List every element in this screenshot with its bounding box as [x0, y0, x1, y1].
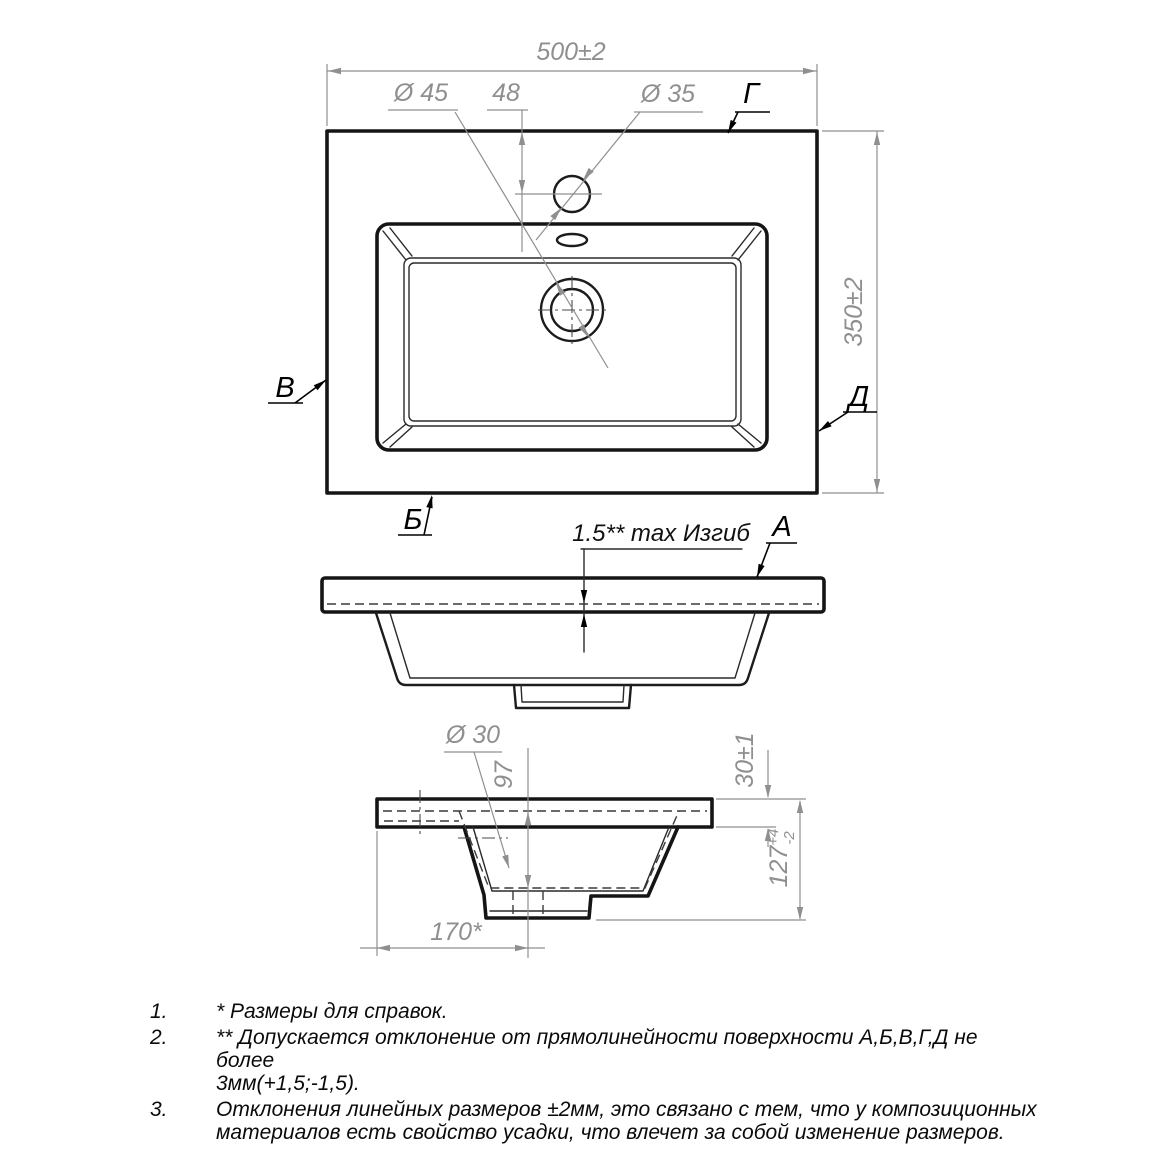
dim-drain-offset: 170* [360, 831, 545, 956]
overflow-slot [557, 234, 587, 246]
plan-view: 500±2 350±2 48 Ø 45 [268, 38, 884, 536]
surface-label-left: В [268, 372, 326, 404]
dim-97-text: 97 [490, 760, 518, 789]
svg-text:В: В [275, 372, 294, 404]
front-drain-boss [514, 685, 631, 708]
section-bowl-hidden [459, 811, 679, 888]
dim-bend: 1.5** max Изгиб [572, 520, 751, 652]
svg-text:Г: Г [743, 78, 761, 110]
note-2-number: 2. [150, 1026, 216, 1095]
note-1: 1. * Размеры для справок. [150, 1000, 1040, 1023]
note-2-text: ** Допускается отклонение от прямолинейн… [216, 1026, 1040, 1095]
svg-text:А: А [770, 511, 791, 543]
sink-drawing-svg: 500±2 350±2 48 Ø 45 [0, 0, 1161, 1161]
dim-48-text: 48 [492, 79, 520, 107]
note-3: 3. Отклонения линейных размеров ±2мм, эт… [150, 1098, 1040, 1144]
dim-dia30-text: Ø 30 [445, 721, 500, 749]
dim-drain-dia: Ø 30 [444, 721, 509, 868]
section-slab [377, 799, 712, 827]
dim-30-text: 30±1 [731, 732, 759, 787]
surface-label-a: А [757, 511, 797, 577]
bend-note-text: 1.5** max Изгиб [572, 520, 751, 547]
dim-faucet-offset: 48 [487, 79, 528, 252]
dim-170-text: 170* [430, 918, 483, 946]
dim-width-text: 500±2 [536, 38, 605, 66]
surface-label-right: Д [819, 381, 877, 431]
note-1-number: 1. [150, 1000, 216, 1023]
notes-block: 1. * Размеры для справок. 2. ** Допускае… [150, 1000, 1040, 1147]
basin-bevel-lines [383, 228, 761, 447]
section-bowl-outline [464, 827, 678, 918]
dim-height-text: 350±2 [840, 277, 868, 346]
front-slab [322, 578, 824, 612]
svg-text:Д: Д [846, 381, 869, 413]
section-bowl-inner [473, 827, 669, 891]
dim-dia45-text: Ø 45 [393, 79, 448, 107]
front-bowl-outer [376, 613, 769, 685]
technical-drawing-sheet: 500±2 350±2 48 Ø 45 [0, 0, 1161, 1161]
surface-label-top: Г [728, 78, 770, 133]
front-drain-boss-inner [521, 685, 624, 702]
front-bowl-inner [390, 613, 755, 678]
note-3-number: 3. [150, 1098, 216, 1144]
surface-label-bottom: Б [398, 495, 433, 536]
section-view: Ø 30 97 30±1 127+4-2 [360, 721, 806, 958]
dim-faucet-dia: Ø 35 [536, 80, 703, 240]
front-view: 1.5** max Изгиб А [322, 511, 824, 708]
dim-thickness: 30±1 [716, 732, 806, 847]
dim-127-text: 127+4-2 [765, 829, 798, 888]
svg-text:Б: Б [404, 504, 423, 536]
drain-hole [538, 276, 606, 344]
dim-dia35-text: Ø 35 [640, 80, 695, 108]
note-3-text: Отклонения линейных размеров ±2мм, это с… [216, 1098, 1040, 1144]
dim-total-height: 127+4-2 [596, 800, 806, 920]
dim-height: 350±2 [822, 131, 884, 493]
note-2: 2. ** Допускается отклонение от прямолин… [150, 1026, 1040, 1095]
note-1-text: * Размеры для справок. [216, 1000, 1040, 1023]
